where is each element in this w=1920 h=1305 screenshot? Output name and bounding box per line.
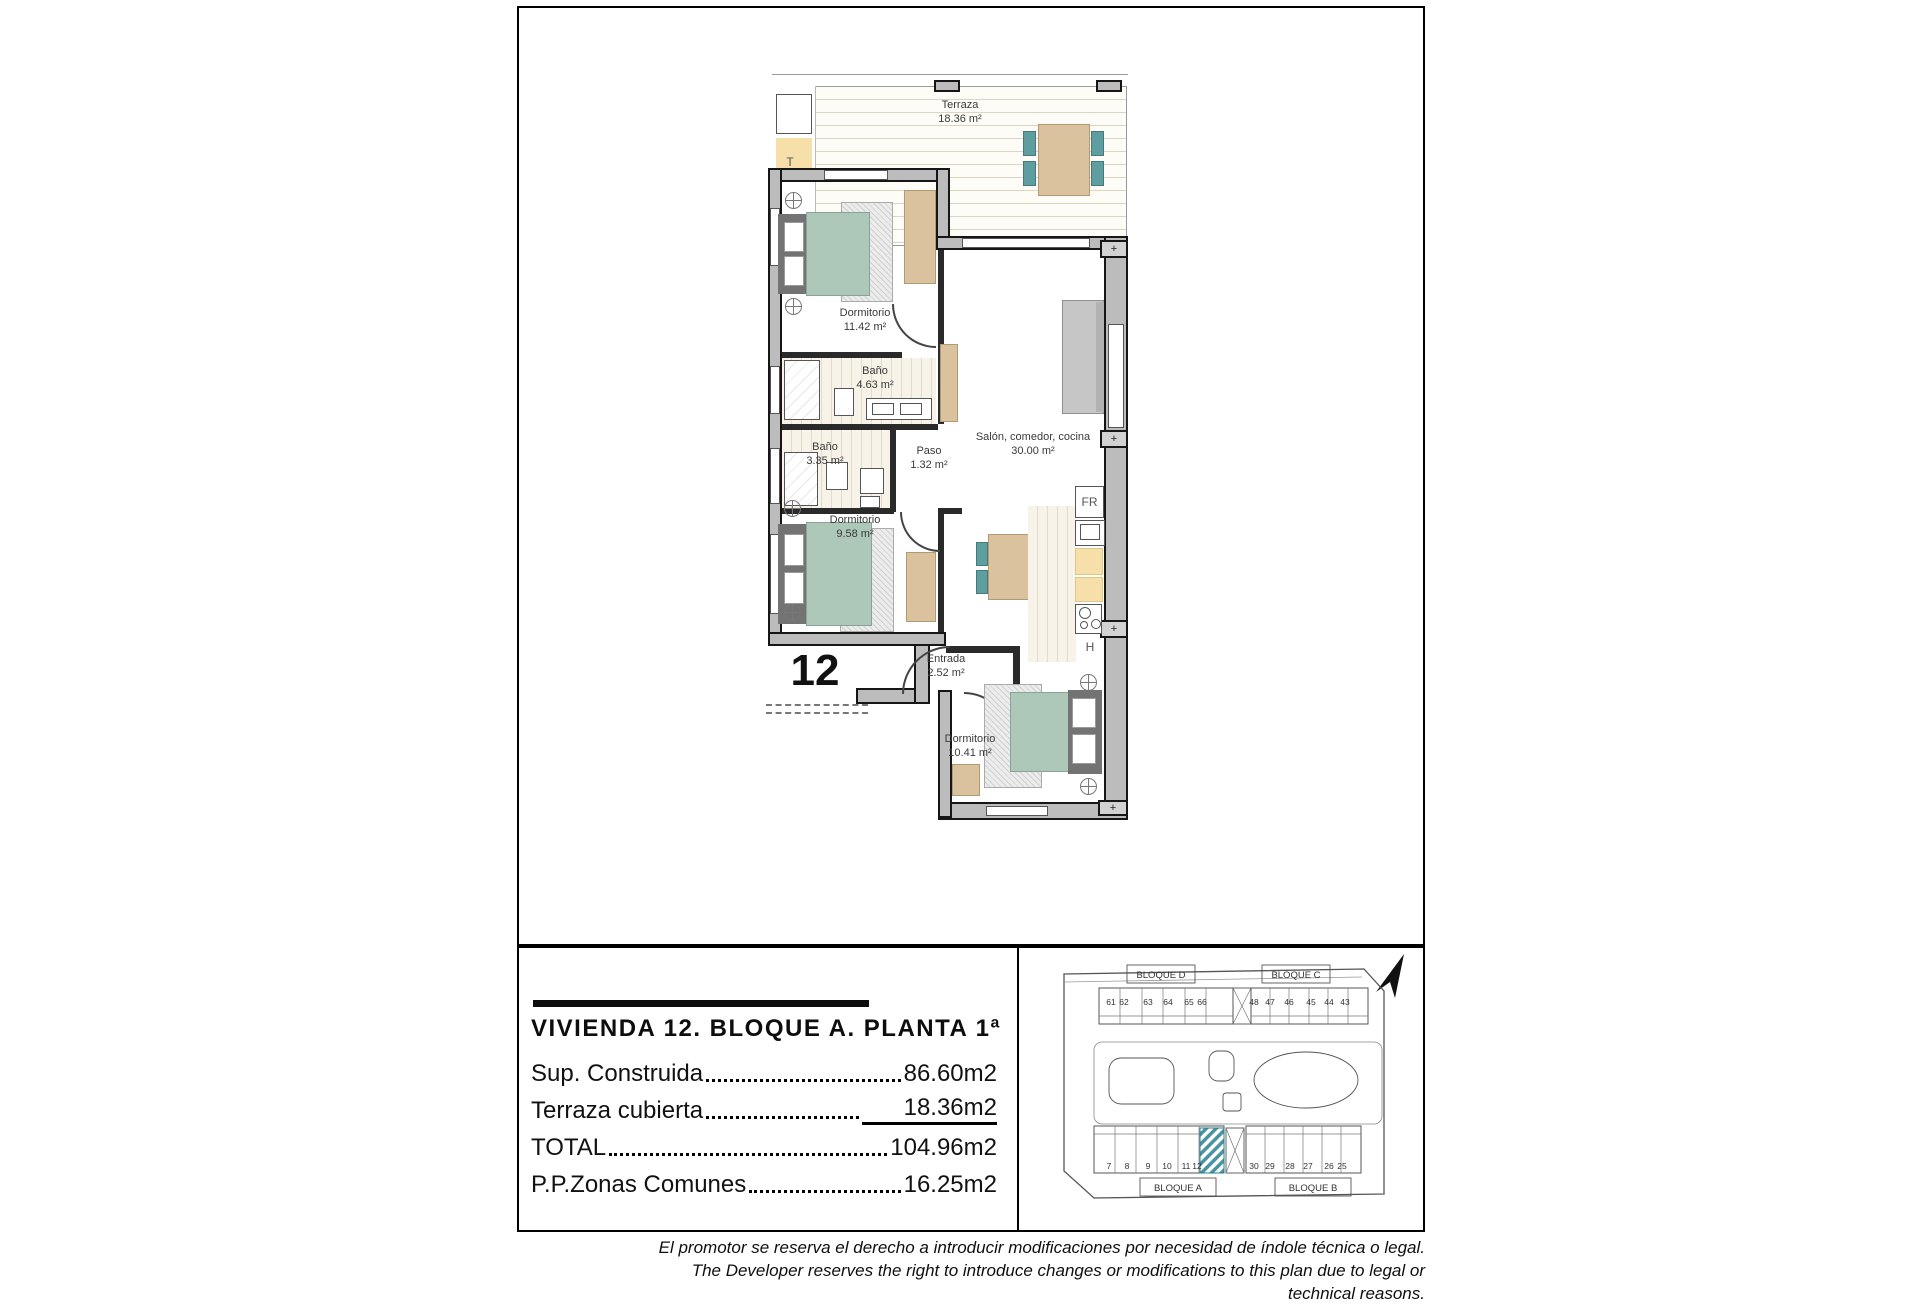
unit-no: 66 [1197, 997, 1207, 1007]
room-label-dormitorio1: Dormitorio 11.42 m² [805, 306, 925, 334]
room-label-paso: Paso 1.32 m² [898, 444, 960, 472]
unit-no: 61 [1106, 997, 1116, 1007]
shower [784, 360, 820, 420]
pillar-marker: + [1098, 800, 1128, 816]
unit-no: 30 [1249, 1161, 1259, 1171]
dining-chair [976, 542, 988, 566]
unit-no: 29 [1265, 1161, 1275, 1171]
room-name: Dormitorio [805, 306, 925, 320]
unit-no: 63 [1143, 997, 1153, 1007]
room-label-salon: Salón, comedor, cocina 30.00 m² [958, 430, 1108, 458]
dining-table [988, 534, 1030, 600]
wardrobe [952, 764, 980, 796]
area-value: 86.60m2 [904, 1060, 997, 1088]
disclaimer-line-es: El promotor se reserva el derecho a intr… [625, 1236, 1425, 1259]
unit-no: 65 [1184, 997, 1194, 1007]
unit-no: 64 [1163, 997, 1173, 1007]
highlighted-unit-12 [1200, 1128, 1224, 1173]
info-panel: VIVIENDA 12. BLOQUE A. PLANTA 1ª Sup. Co… [531, 995, 1001, 1215]
room-area: 10.41 m² [920, 746, 1020, 760]
wardrobe [906, 552, 936, 622]
unit-no: 27 [1303, 1161, 1313, 1171]
hob-burner [1091, 619, 1101, 629]
room-name: Baño [840, 364, 910, 378]
bloque-d-label: BLOQUE D [1136, 970, 1185, 981]
room-label-bano1: Baño 4.63 m² [840, 364, 910, 392]
unit-no: 12 [1192, 1161, 1202, 1171]
unit-no: 47 [1265, 997, 1275, 1007]
terrace-pillar [1096, 80, 1122, 92]
unit-no: 28 [1285, 1161, 1295, 1171]
dot-leader [609, 1153, 887, 1156]
outdoor-table [1038, 124, 1090, 196]
hob-burner [1079, 607, 1091, 619]
floor-plan: T Terraza 18.36 m² + + + + [0, 0, 1920, 944]
dining-chair [976, 570, 988, 594]
room-area: 9.58 m² [800, 527, 910, 541]
dot-leader [706, 1116, 859, 1119]
room-area: 4.63 m² [840, 378, 910, 392]
room-label-entrada: Entrada 2.52 m² [908, 652, 984, 680]
disclaimer-line-en: The Developer reserves the right to intr… [625, 1259, 1425, 1305]
room-label-dormitorio2: Dormitorio 9.58 m² [800, 513, 910, 541]
room-area: 18.36 m² [900, 112, 1020, 126]
outdoor-chair [1091, 131, 1104, 156]
vanity [860, 468, 884, 494]
lawn [1109, 1058, 1174, 1104]
site-plan: BLOQUE D 61 62 63 64 65 66 BLOQUE C 48 [1018, 948, 1424, 1230]
room-name: Terraza [900, 98, 1020, 112]
window [986, 806, 1048, 816]
main-pool [1254, 1052, 1358, 1108]
unit-no: 25 [1337, 1161, 1347, 1171]
courtyard [1094, 1042, 1382, 1124]
wardrobe [904, 190, 936, 284]
title-bar-rule [533, 1000, 869, 1007]
bed [806, 212, 870, 296]
sink [872, 403, 894, 415]
sofa-back [1096, 302, 1104, 412]
ceiling-light-icon [784, 604, 801, 621]
outdoor-chair [1023, 131, 1036, 156]
counter [1075, 577, 1103, 602]
terrace-pillar [934, 80, 960, 92]
sideboard [940, 344, 958, 422]
cabinet [860, 496, 880, 508]
unit-no: 43 [1340, 997, 1350, 1007]
unit-no: 62 [1119, 997, 1129, 1007]
hob-label: H [1078, 636, 1102, 658]
disclaimer: El promotor se reserva el derecho a intr… [625, 1236, 1425, 1305]
room-area: 11.42 m² [805, 320, 925, 334]
room-area: 30.00 m² [958, 444, 1108, 458]
unit-no: 8 [1125, 1161, 1130, 1171]
terrace-slider-window [962, 238, 1090, 248]
kitchen-floor [1028, 506, 1076, 662]
ceiling-light-icon [785, 192, 802, 209]
hob-burner [1080, 621, 1088, 629]
bloque-c-label: BLOQUE C [1271, 970, 1320, 981]
pillar-marker: + [1100, 240, 1128, 258]
pillow [1072, 698, 1096, 728]
area-row: Sup. Construida 86.60m2 [531, 1051, 997, 1088]
room-label-dormitorio3: Dormitorio 10.41 m² [920, 732, 1020, 760]
ceiling-light-icon [1080, 674, 1097, 691]
pillow [784, 222, 804, 252]
area-label: Terraza cubierta [531, 1097, 703, 1125]
interior-wall [890, 430, 896, 512]
small-pool [1209, 1051, 1234, 1081]
area-value: 16.25m2 [904, 1171, 997, 1199]
window [824, 170, 888, 180]
unit-number: 12 [780, 648, 850, 694]
room-label-bano2: Baño 3.35 m² [790, 440, 860, 468]
sink [900, 403, 922, 415]
room-name: Entrada [908, 652, 984, 666]
area-value: 18.36m2 [862, 1094, 997, 1125]
fridge: FR [1075, 486, 1104, 518]
area-label: P.P.Zonas Comunes [531, 1171, 746, 1199]
unit-no: 45 [1306, 997, 1316, 1007]
ceiling-light-icon [1080, 778, 1097, 795]
pillow [1072, 734, 1096, 764]
unit-no: 26 [1324, 1161, 1334, 1171]
outdoor-chair [1091, 161, 1104, 186]
terrace-top-line [772, 74, 1128, 75]
room-area: 2.52 m² [908, 666, 984, 680]
pillow [784, 572, 804, 604]
window [770, 366, 780, 414]
area-label: Sup. Construida [531, 1060, 703, 1088]
unit-no: 9 [1146, 1161, 1151, 1171]
unit-no: 11 [1182, 1161, 1191, 1171]
pillar-marker: + [1100, 620, 1128, 638]
area-value: 104.96m2 [890, 1134, 997, 1162]
area-row: TOTAL 104.96m2 [531, 1125, 997, 1162]
unit-no: 48 [1249, 997, 1259, 1007]
room-area: 3.35 m² [790, 454, 860, 468]
ceiling-light-icon [785, 298, 802, 315]
area-table: Sup. Construida 86.60m2 Terraza cubierta… [531, 1051, 997, 1199]
area-row: P.P.Zonas Comunes 16.25m2 [531, 1162, 997, 1199]
bloque-b-label: BLOQUE B [1289, 1183, 1338, 1194]
room-name: Baño [790, 440, 860, 454]
room-name: Salón, comedor, cocina [958, 430, 1108, 444]
window [1108, 324, 1124, 428]
area-row: Terraza cubierta 18.36m2 [531, 1088, 997, 1125]
dot-leader [706, 1079, 900, 1082]
room-area: 1.32 m² [898, 458, 960, 472]
north-arrow-icon [1376, 954, 1404, 998]
pillow [784, 256, 804, 286]
room-name: Dormitorio [920, 732, 1020, 746]
spa [1223, 1093, 1241, 1111]
room-label-terraza: Terraza 18.36 m² [900, 98, 1020, 126]
porch-edge [766, 712, 868, 714]
ceiling-light-icon [784, 500, 801, 517]
unit-no: 7 [1107, 1161, 1112, 1171]
plan-sheet: T Terraza 18.36 m² + + + + [0, 0, 1920, 1280]
toilet [834, 388, 854, 416]
area-label: TOTAL [531, 1134, 606, 1162]
info-title: VIVIENDA 12. BLOQUE A. PLANTA 1ª [531, 1015, 1001, 1043]
kitchen-sink-basin [1080, 524, 1100, 540]
window [770, 448, 780, 504]
counter [1075, 548, 1103, 575]
terrace-planter [776, 94, 812, 134]
room-name: Dormitorio [800, 513, 910, 527]
outdoor-chair [1023, 161, 1036, 186]
room-name: Paso [898, 444, 960, 458]
unit-no: 10 [1162, 1161, 1172, 1171]
bloque-a-label: BLOQUE A [1154, 1183, 1203, 1194]
dot-leader [749, 1190, 900, 1193]
porch-edge [766, 704, 868, 706]
unit-no: 46 [1284, 997, 1294, 1007]
unit-no: 44 [1324, 997, 1334, 1007]
